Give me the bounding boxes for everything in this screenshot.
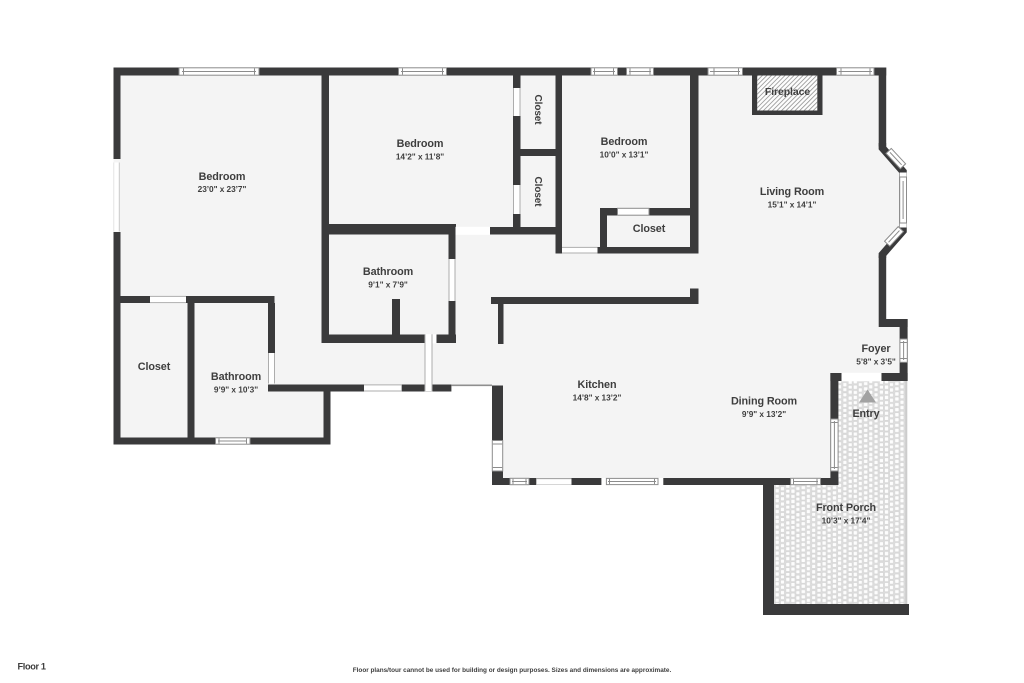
svg-text:14’8" x 13’2": 14’8" x 13’2": [573, 393, 622, 403]
svg-text:Bedroom: Bedroom: [397, 138, 444, 150]
svg-text:Closet: Closet: [633, 223, 666, 235]
svg-text:10’3" x 17’4": 10’3" x 17’4": [822, 516, 871, 526]
svg-text:10’0" x 13’1": 10’0" x 13’1": [600, 150, 649, 160]
svg-text:Closet: Closet: [532, 95, 543, 126]
svg-text:Closet: Closet: [138, 361, 171, 373]
svg-text:Closet: Closet: [532, 177, 543, 208]
svg-text:Fireplace: Fireplace: [765, 86, 810, 98]
svg-text:Kitchen: Kitchen: [578, 379, 617, 391]
svg-text:5’8" x 3’5": 5’8" x 3’5": [856, 357, 896, 367]
svg-text:14’2" x 11’8": 14’2" x 11’8": [396, 152, 444, 162]
svg-text:Bedroom: Bedroom: [199, 171, 246, 183]
svg-text:Floor 1: Floor 1: [18, 662, 46, 672]
svg-text:9’9" x 13’2": 9’9" x 13’2": [742, 409, 786, 419]
svg-text:Bathroom: Bathroom: [211, 371, 261, 383]
svg-text:Entry: Entry: [852, 408, 879, 420]
svg-text:9’1" x 7’9": 9’1" x 7’9": [368, 280, 408, 290]
svg-text:15’1" x 14’1": 15’1" x 14’1": [768, 200, 817, 210]
svg-text:Bathroom: Bathroom: [363, 266, 413, 278]
svg-text:Dining Room: Dining Room: [731, 396, 797, 408]
svg-text:Bedroom: Bedroom: [601, 136, 648, 148]
svg-text:23’0" x 23’7": 23’0" x 23’7": [198, 184, 247, 194]
svg-text:Foyer: Foyer: [862, 343, 892, 355]
svg-text:9’9" x 10’3": 9’9" x 10’3": [214, 385, 258, 395]
svg-text:Front Porch: Front Porch: [816, 502, 876, 514]
svg-text:Living Room: Living Room: [760, 186, 824, 198]
svg-text:Floor plans/tour cannot be use: Floor plans/tour cannot be used for buil…: [353, 667, 672, 674]
